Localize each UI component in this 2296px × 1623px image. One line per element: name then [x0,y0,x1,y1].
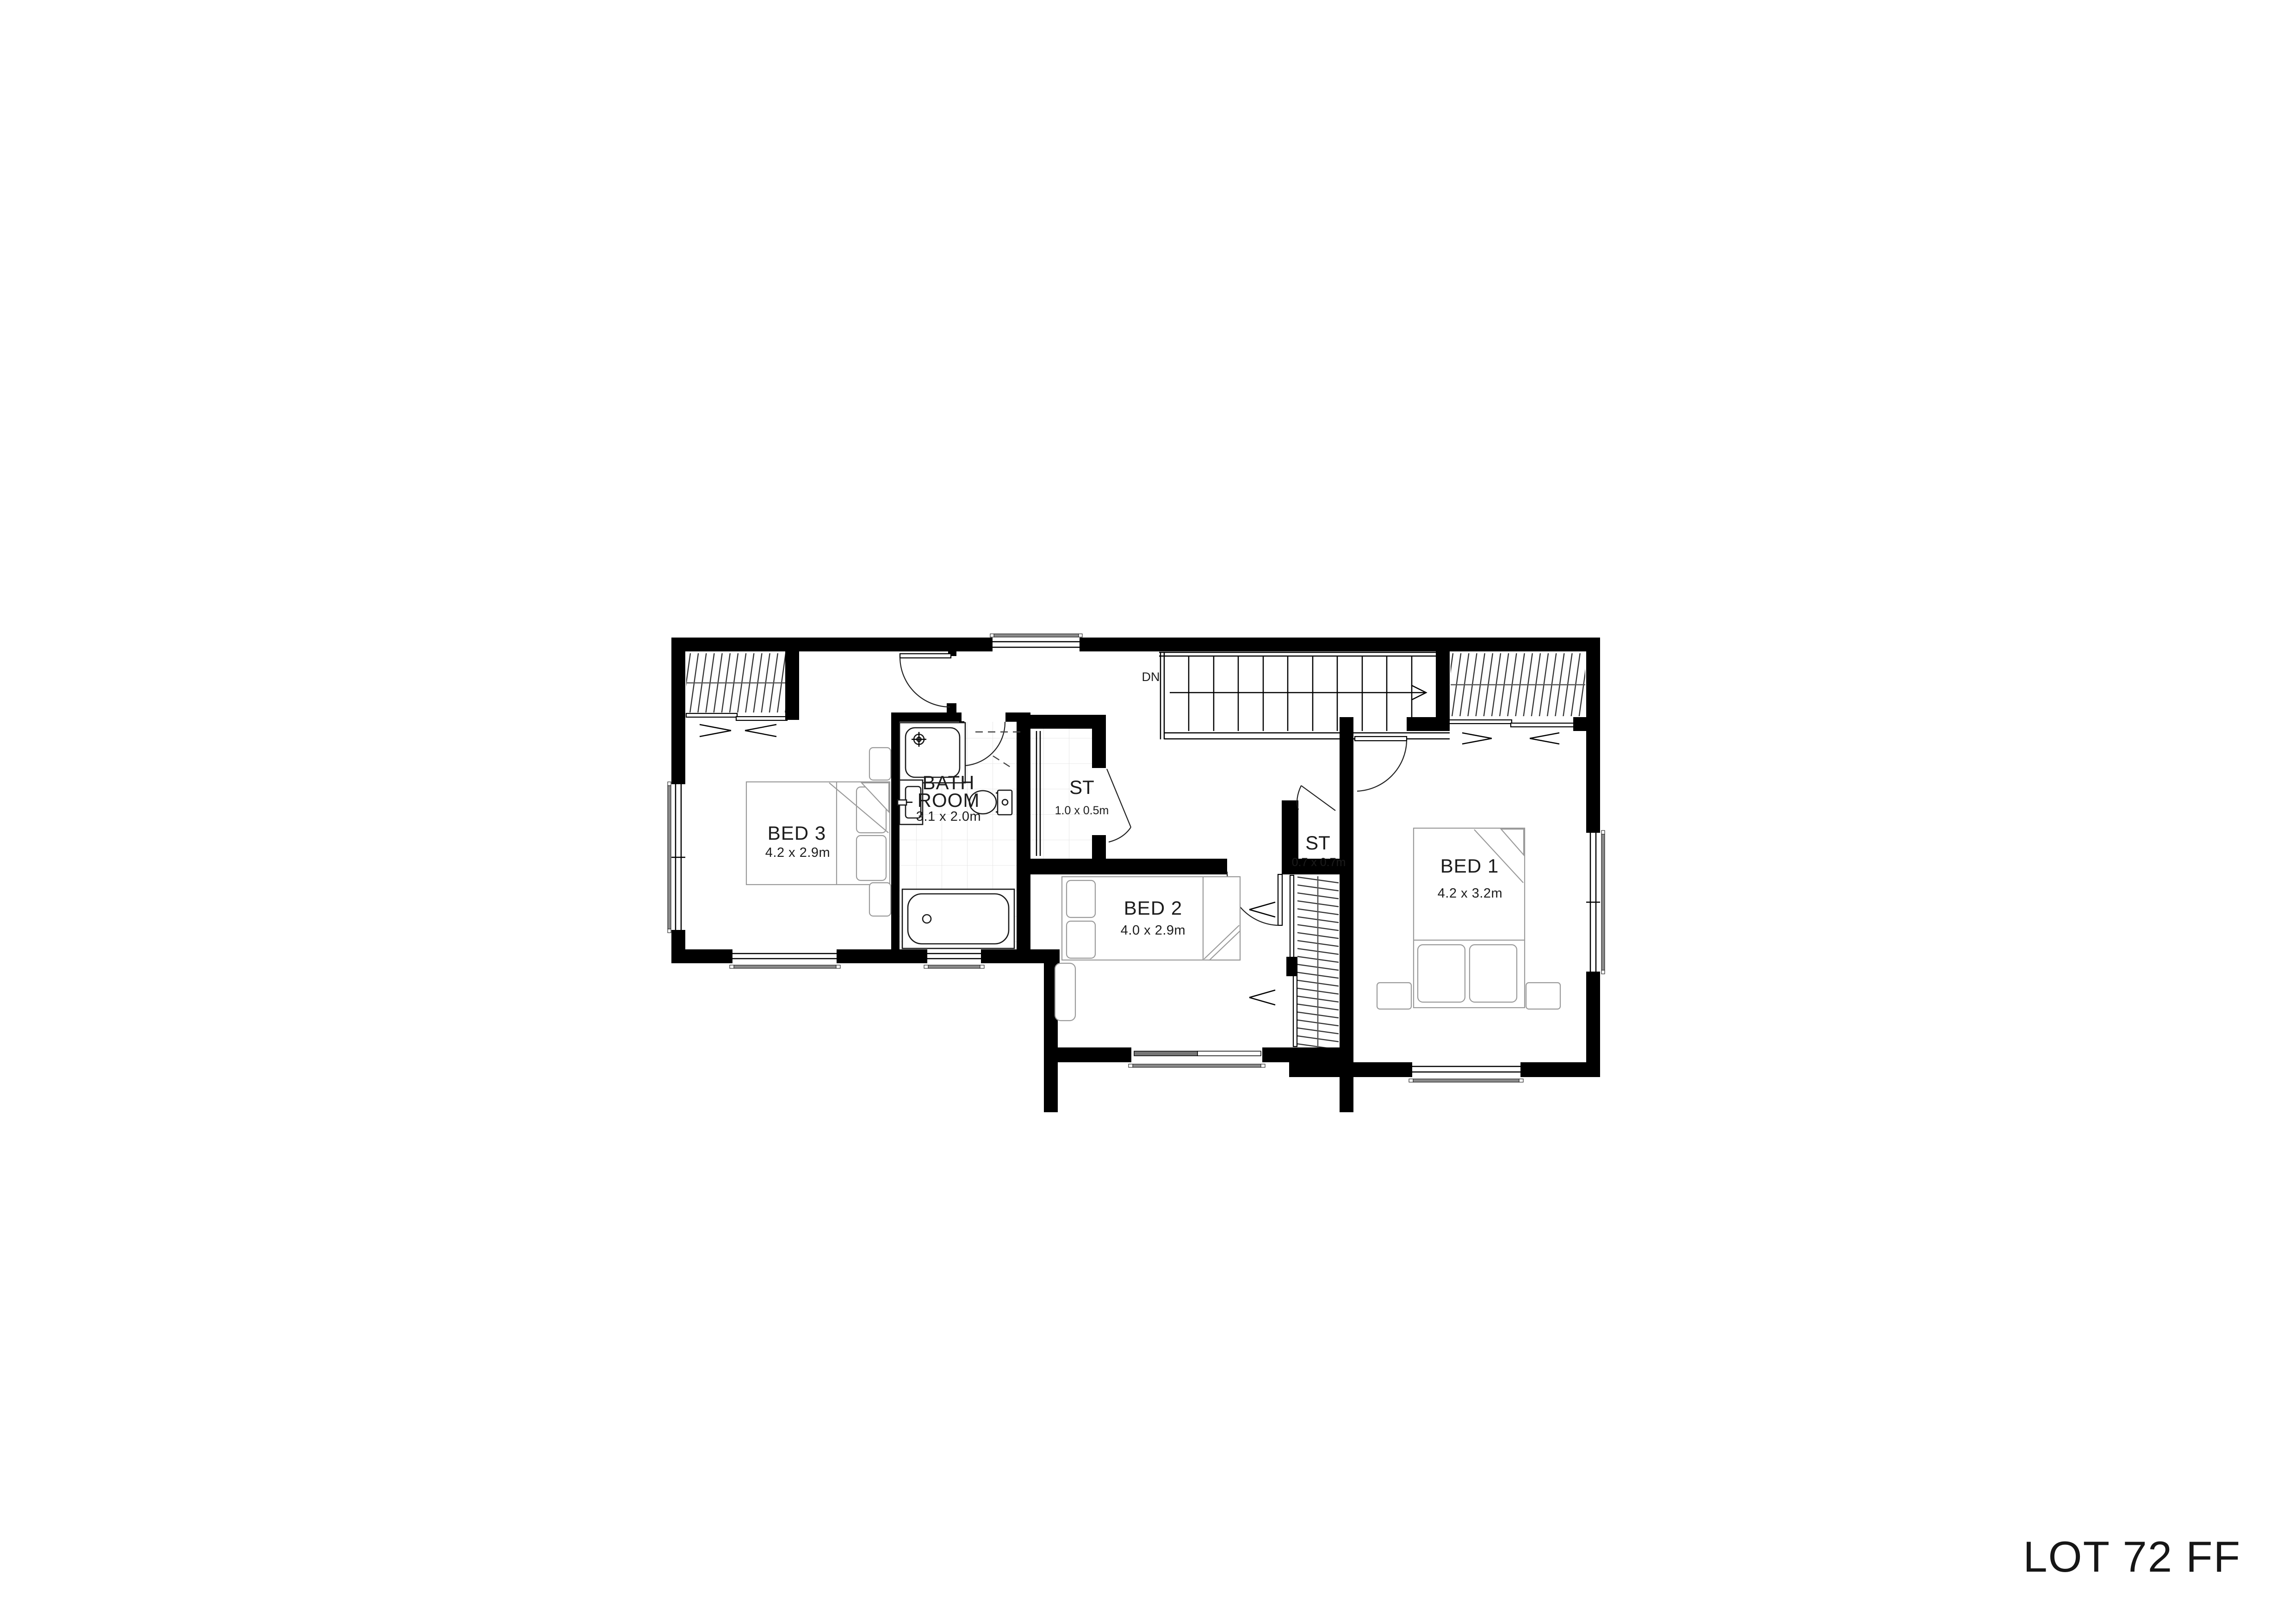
bed1-side-table [1526,983,1560,1009]
floor-plan-sheet: DN [0,0,2296,1623]
bed2-dims: 4.0 x 2.9m [1121,923,1185,938]
bed3-robe-slider-panel [686,713,737,717]
bed3-side-table [869,883,891,916]
window-bed1-bottom [1409,1062,1523,1082]
bathroom-dims: 3.1 x 2.0m [916,809,981,824]
bed2-name: BED 2 [1124,897,1182,919]
store1-name: ST [1069,776,1094,798]
paper [0,0,2296,1623]
store2-name: ST [1305,832,1330,854]
window-bed3-bottom [730,949,840,968]
slider-stop [1286,957,1297,976]
bed3-dims: 4.2 x 2.9m [765,845,830,860]
store2-dims: 0.7 x 0.7m [1292,856,1346,869]
bed2-robe-slider-panel [1290,875,1294,961]
bed3-robe-slider-panel [736,717,787,720]
bathroom-name-line2: ROOM [918,789,980,811]
bathtub [902,889,1014,948]
bed3-side-table [869,748,891,780]
window-bed1-right [1586,830,1605,974]
bed1-side-table [1377,983,1411,1009]
bed1-dims: 4.2 x 3.2m [1438,886,1502,901]
bed3-name: BED 3 [768,822,826,844]
bed1-name: BED 1 [1440,855,1499,877]
stairs-down-label: DN [1142,670,1160,684]
bed1-robe-slider-panel [1448,720,1512,724]
store1-dims: 1.0 x 0.5m [1055,804,1109,817]
bed2-side-table [1055,963,1075,1021]
window-bath-bottom [924,949,984,968]
bed1-robe-slider-panel [1511,723,1574,727]
window-bed3-left [668,782,685,933]
window-bed2-bottom [1129,1047,1265,1067]
window-top-hall [990,634,1082,651]
sheet-title: LOT 72 FF [2023,1532,2241,1581]
